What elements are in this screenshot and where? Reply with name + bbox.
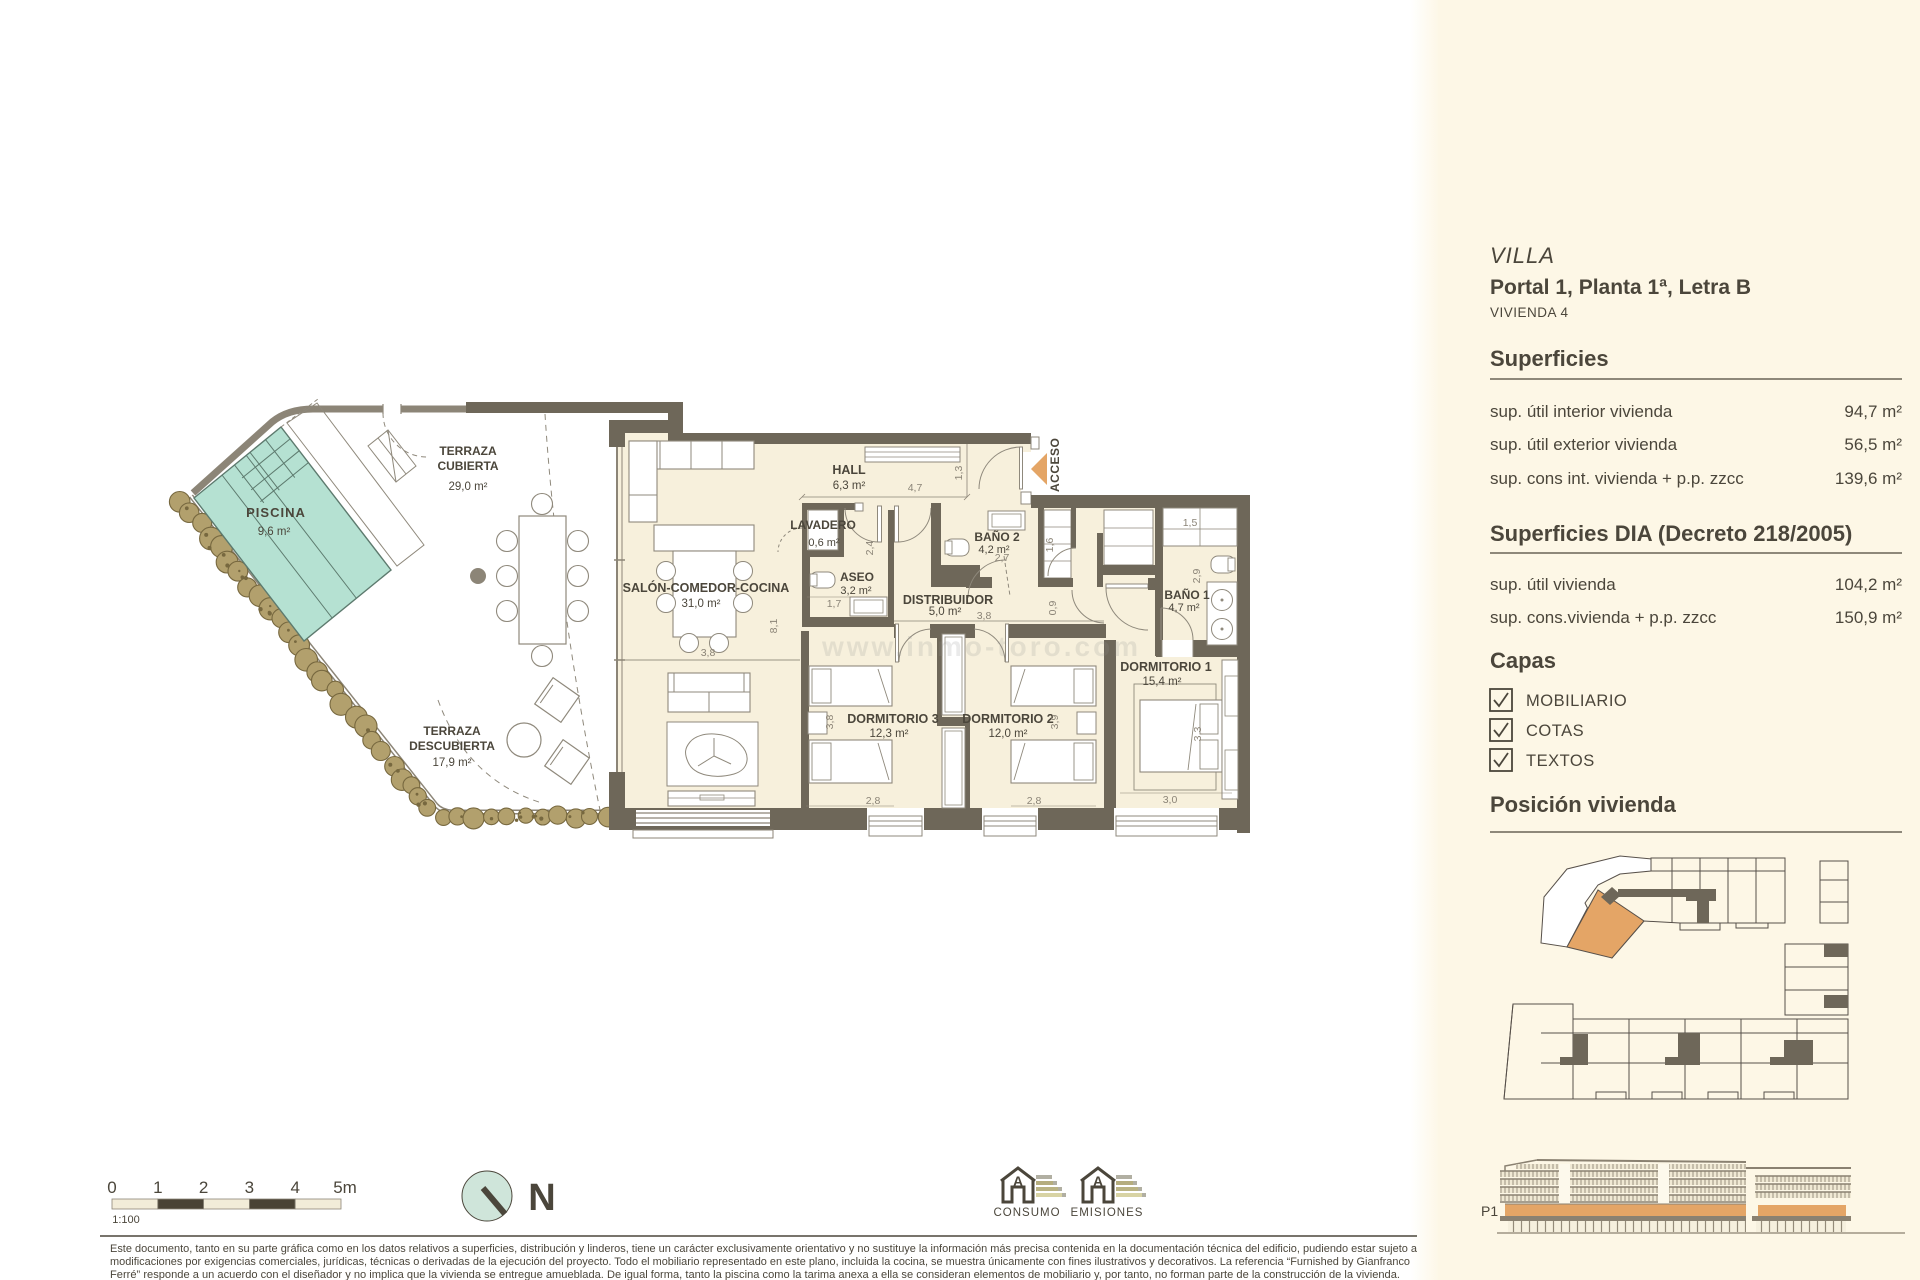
svg-text:1:100: 1:100 [112, 1214, 140, 1226]
svg-text:Superficies: Superficies [1490, 346, 1609, 371]
svg-text:94,7 m²: 94,7 m² [1844, 402, 1902, 421]
svg-text:0: 0 [107, 1178, 116, 1197]
svg-text:Capas: Capas [1490, 648, 1556, 673]
svg-text:1,5: 1,5 [1183, 517, 1198, 529]
svg-text:3,8: 3,8 [824, 715, 836, 730]
svg-text:0,9: 0,9 [1047, 601, 1059, 616]
svg-text:TEXTOS: TEXTOS [1526, 752, 1595, 770]
svg-text:LAVADERO: LAVADERO [790, 518, 856, 532]
svg-text:Portal 1, Planta 1ª, Letra B: Portal 1, Planta 1ª, Letra B [1490, 276, 1751, 299]
svg-text:4,7: 4,7 [908, 482, 923, 494]
svg-text:1: 1 [153, 1178, 162, 1197]
svg-text:DESCUBIERTA: DESCUBIERTA [409, 739, 495, 753]
svg-text:1,6: 1,6 [1044, 538, 1056, 553]
svg-text:sup. útil interior vivienda: sup. útil interior vivienda [1490, 402, 1673, 421]
svg-text:Superficies DIA (Decreto 218/2: Superficies DIA (Decreto 218/2005) [1490, 521, 1852, 546]
svg-text:8,1: 8,1 [768, 619, 780, 634]
svg-text:2,8: 2,8 [1027, 795, 1042, 807]
svg-text:5m: 5m [333, 1178, 357, 1197]
svg-text:Ferré” responde a un acuerdo c: Ferré” responde a un acuerdo con el dise… [110, 1269, 1400, 1280]
svg-text:TERRAZA: TERRAZA [423, 724, 481, 738]
svg-text:DORMITORIO 3: DORMITORIO 3 [847, 712, 938, 726]
svg-text:BAÑO 2: BAÑO 2 [974, 529, 1020, 544]
svg-text:PISCINA: PISCINA [246, 505, 306, 520]
svg-text:N: N [528, 1177, 555, 1219]
svg-text:3,2 m²: 3,2 m² [840, 585, 872, 597]
svg-text:3,8: 3,8 [701, 647, 716, 659]
svg-text:Posición vivienda: Posición vivienda [1490, 792, 1677, 817]
svg-text:sup. cons.vivienda + p.p. zzcc: sup. cons.vivienda + p.p. zzcc [1490, 608, 1717, 627]
svg-text:3: 3 [245, 1178, 254, 1197]
svg-text:Este documento, tanto en su pa: Este documento, tanto en su parte gráfic… [110, 1243, 1418, 1255]
svg-text:BAÑO 1: BAÑO 1 [1164, 587, 1210, 602]
svg-text:3,9: 3,9 [1049, 715, 1061, 730]
svg-text:3,0: 3,0 [1163, 794, 1178, 806]
svg-text:www.inmo-toro.com: www.inmo-toro.com [821, 631, 1141, 662]
svg-text:sup. cons int. vivienda + p.p.: sup. cons int. vivienda + p.p. zzcc [1490, 469, 1744, 488]
svg-text:104,2 m²: 104,2 m² [1835, 575, 1902, 594]
svg-text:3,8: 3,8 [977, 610, 992, 622]
svg-text:15,4 m²: 15,4 m² [1143, 676, 1182, 688]
svg-text:12,0 m²: 12,0 m² [989, 728, 1028, 740]
svg-text:0,6 m²: 0,6 m² [808, 537, 840, 549]
svg-text:1,7: 1,7 [827, 598, 842, 610]
svg-text:HALL: HALL [832, 463, 866, 477]
svg-text:139,6 m²: 139,6 m² [1835, 469, 1902, 488]
svg-text:sup. útil vivienda: sup. útil vivienda [1490, 575, 1616, 594]
svg-text:ASEO: ASEO [840, 570, 874, 584]
svg-text:VIVIENDA 4: VIVIENDA 4 [1490, 305, 1569, 320]
svg-text:P1: P1 [1481, 1203, 1498, 1219]
svg-text:2,7: 2,7 [995, 552, 1010, 564]
svg-text:6,3 m²: 6,3 m² [833, 480, 866, 492]
svg-text:COTAS: COTAS [1526, 722, 1584, 740]
svg-text:9,6 m²: 9,6 m² [258, 526, 291, 538]
svg-text:EMISIONES: EMISIONES [1071, 1207, 1144, 1219]
svg-text:MOBILIARIO: MOBILIARIO [1526, 692, 1627, 710]
svg-text:4: 4 [290, 1178, 299, 1197]
svg-text:2: 2 [199, 1178, 208, 1197]
svg-text:VILLA: VILLA [1490, 243, 1555, 268]
svg-text:5,0 m²: 5,0 m² [929, 606, 962, 618]
svg-text:A: A [1093, 1173, 1103, 1189]
svg-text:29,0 m²: 29,0 m² [449, 481, 488, 493]
svg-text:SALÓN-COMEDOR-COCINA: SALÓN-COMEDOR-COCINA [623, 580, 790, 595]
svg-text:2,8: 2,8 [866, 795, 881, 807]
svg-text:3,3: 3,3 [1192, 727, 1204, 742]
svg-text:DISTRIBUIDOR: DISTRIBUIDOR [903, 593, 993, 607]
svg-text:DORMITORIO 2: DORMITORIO 2 [962, 712, 1053, 726]
svg-text:1,3: 1,3 [953, 466, 965, 481]
svg-text:ACCESO: ACCESO [1048, 438, 1062, 492]
svg-text:TERRAZA: TERRAZA [439, 444, 497, 458]
svg-text:12,3 m²: 12,3 m² [870, 728, 909, 740]
svg-text:17,9 m²: 17,9 m² [433, 757, 472, 769]
svg-text:2,9: 2,9 [1191, 569, 1203, 584]
svg-text:CONSUMO: CONSUMO [993, 1207, 1060, 1219]
svg-text:DORMITORIO 1: DORMITORIO 1 [1120, 660, 1211, 674]
svg-text:sup. útil exterior vivienda: sup. útil exterior vivienda [1490, 435, 1678, 454]
svg-text:4,7 m²: 4,7 m² [1168, 602, 1200, 614]
svg-text:A: A [1013, 1173, 1023, 1189]
svg-text:56,5 m²: 56,5 m² [1844, 435, 1902, 454]
svg-text:modificaciones por exigencias: modificaciones por exigencias comerciale… [110, 1256, 1410, 1268]
svg-text:2,4: 2,4 [864, 541, 876, 556]
svg-text:CUBIERTA: CUBIERTA [437, 459, 498, 473]
svg-text:150,9 m²: 150,9 m² [1835, 608, 1902, 627]
svg-text:31,0 m²: 31,0 m² [682, 598, 721, 610]
